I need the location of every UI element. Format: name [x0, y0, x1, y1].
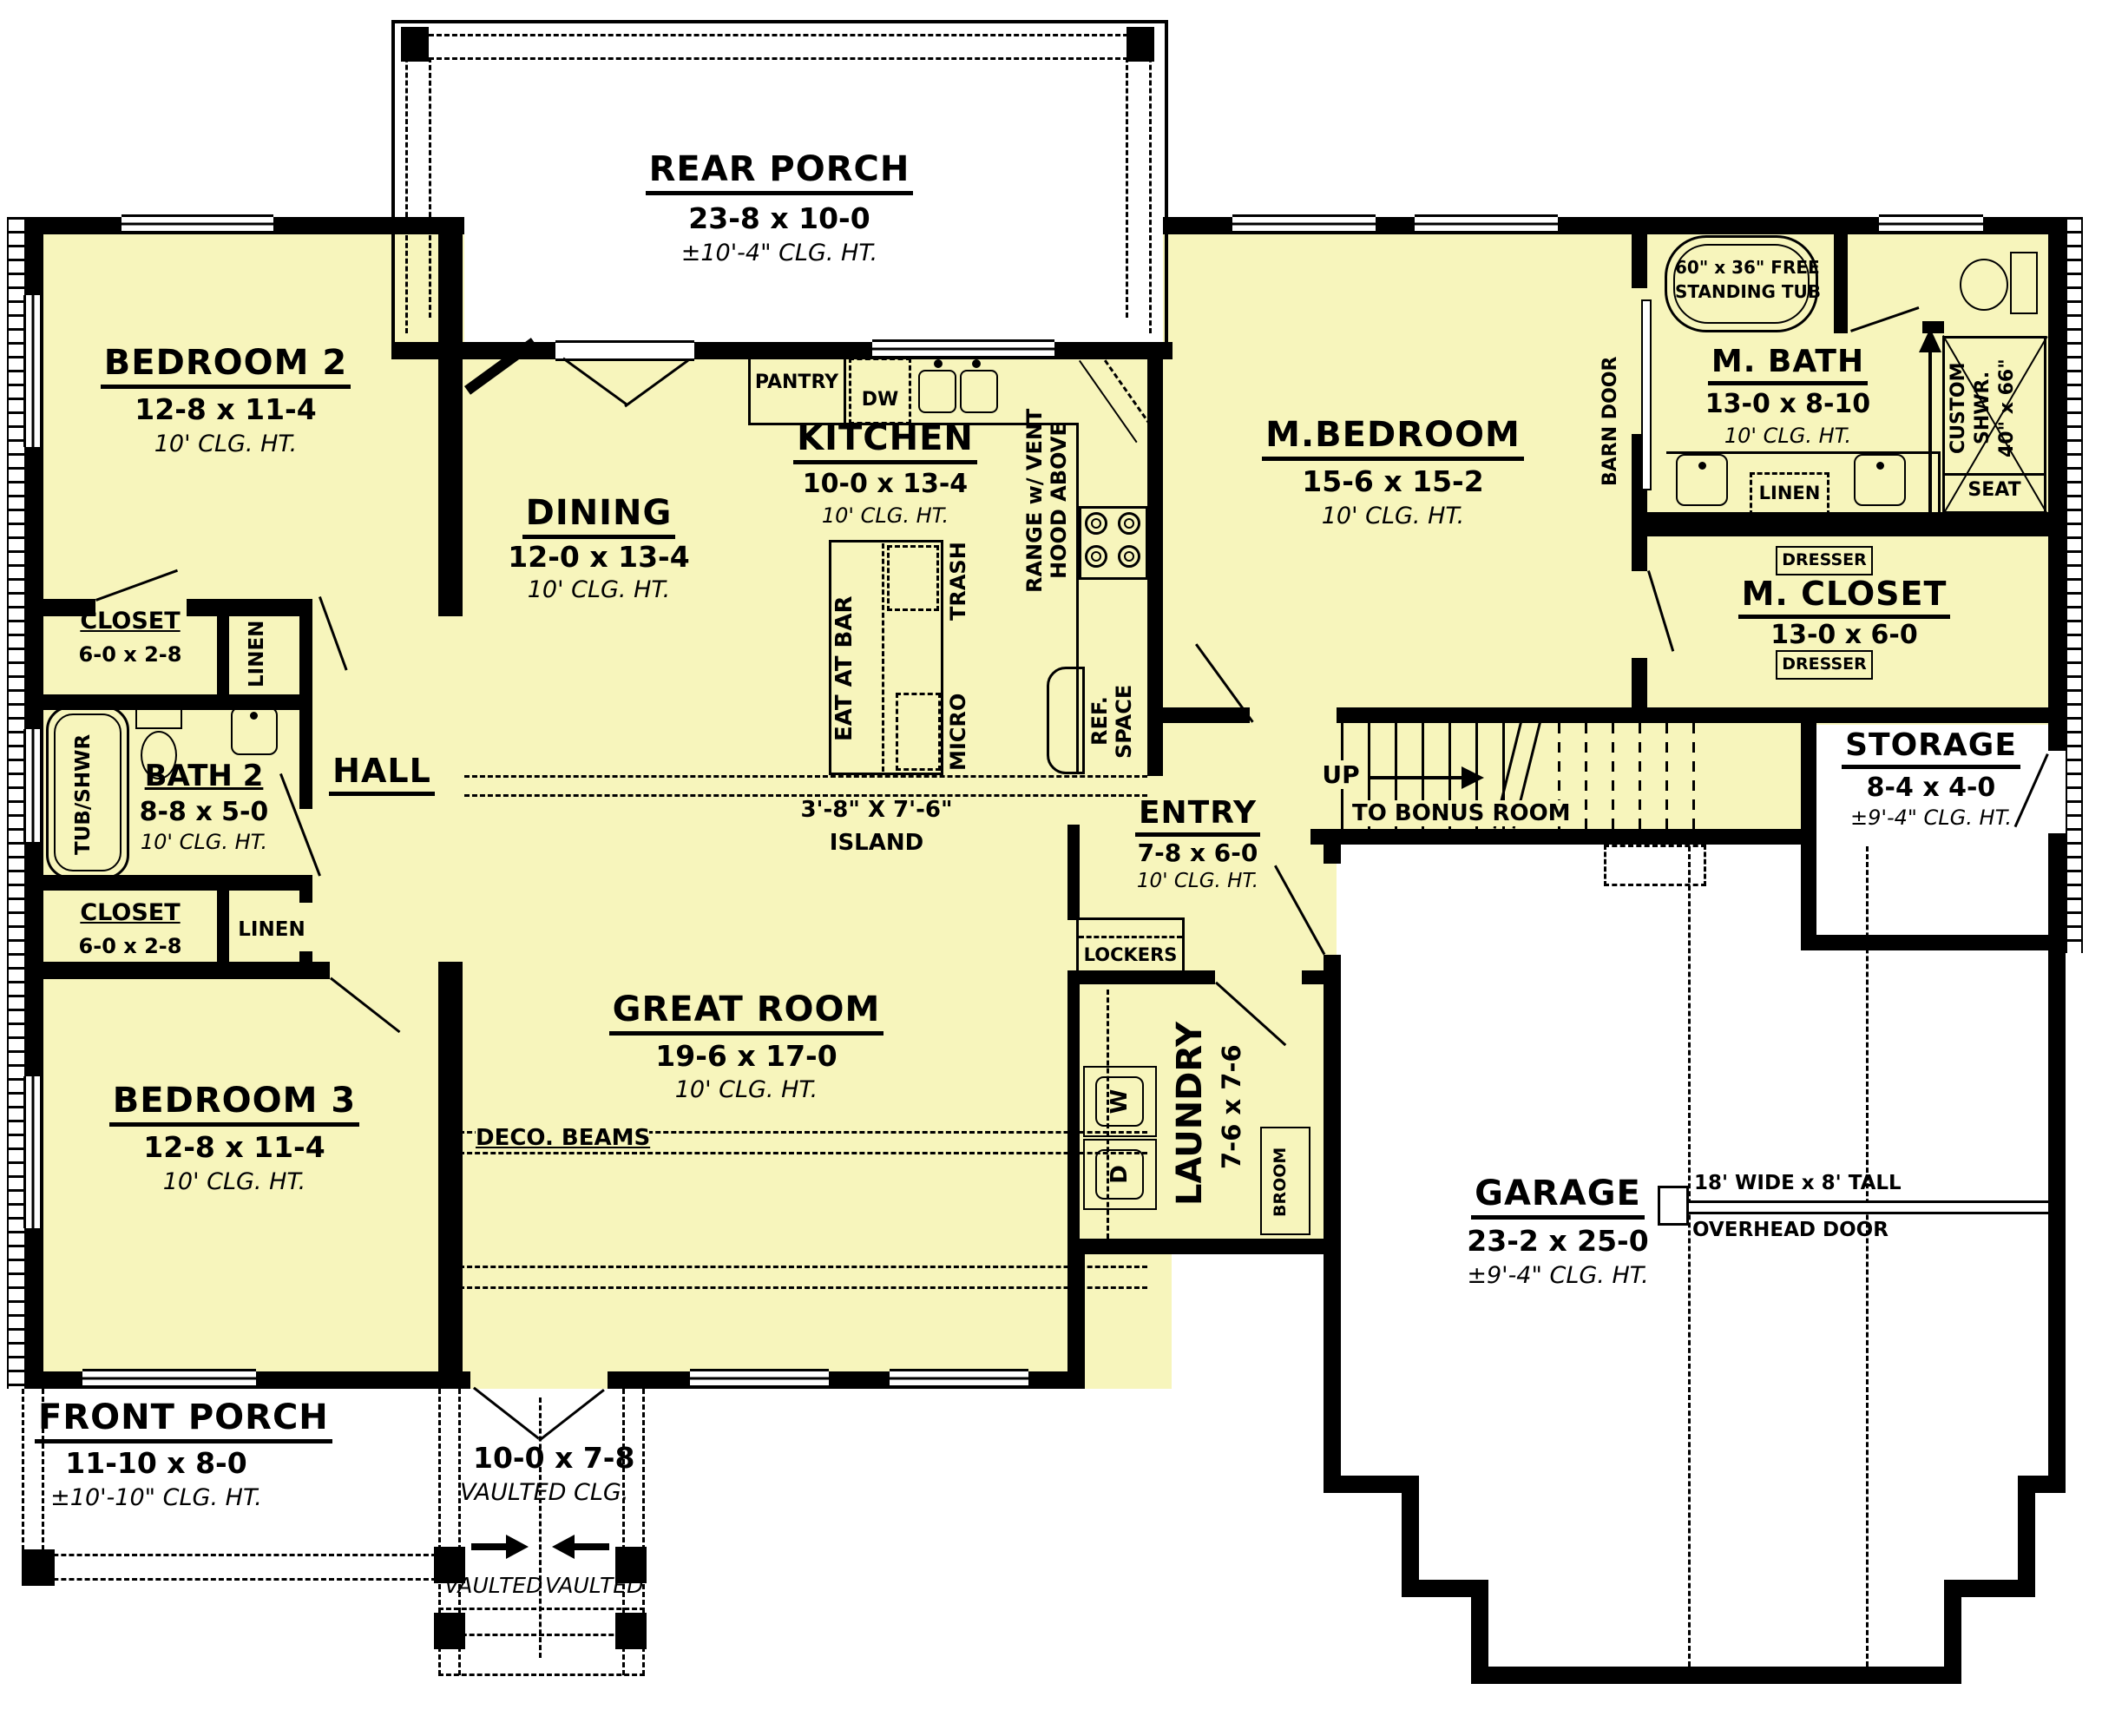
wall	[1632, 536, 1647, 571]
wall	[26, 875, 312, 891]
entry-title: ENTRY	[1107, 795, 1289, 831]
tub-label: 60" x 36" FREE	[1675, 257, 1808, 278]
wall	[1471, 1667, 1961, 1684]
tub-shwr-label: TUB/SHWR	[72, 727, 103, 862]
barn-door-label: BARN DOOR	[1599, 343, 1627, 499]
rear-porch-clg: ±10'-4" CLG. HT.	[645, 240, 914, 266]
overhead-door-panel	[1688, 1200, 2048, 1214]
window	[1415, 214, 1558, 233]
island-divider	[882, 543, 884, 772]
window	[872, 339, 1054, 358]
stair-treads-dash-mask	[1558, 723, 1710, 829]
bedroom2-dims: 12-8 x 11-4	[78, 392, 373, 426]
kitchen-title: KITCHEN	[785, 418, 985, 458]
rear-porch-dims: 23-8 x 10-0	[645, 201, 914, 235]
lockers-dash	[1079, 936, 1182, 938]
arrow-left-icon	[552, 1535, 575, 1559]
porch-post	[22, 1549, 55, 1586]
garage-door-track	[1688, 846, 1691, 1667]
linen1-label: LINEN	[246, 606, 277, 701]
burner-icon	[1118, 512, 1140, 535]
broom-label: BROOM	[1271, 1135, 1300, 1229]
barn-door-panel	[1641, 299, 1652, 490]
wall	[1067, 825, 1080, 920]
wall	[1163, 707, 1250, 723]
linen2-label: LINEN	[224, 918, 319, 941]
faucet	[1698, 462, 1706, 470]
entry-clg: 10' CLG. HT.	[1107, 870, 1289, 892]
mbath-toilet-bowl	[1960, 259, 2008, 311]
storage-clg: ±9'-4" CLG. HT.	[1810, 806, 2053, 830]
vaulted-porch-edge	[438, 1608, 645, 1610]
bedroom2-title: BEDROOM 2	[78, 343, 373, 383]
faucet	[1876, 462, 1884, 470]
window	[890, 1369, 1028, 1388]
great-room-dims: 19-6 x 17-0	[599, 1039, 894, 1073]
vaulted-ridge-line	[539, 1397, 542, 1658]
island-label: ISLAND	[794, 830, 959, 856]
shower-label: SHWR.	[1972, 352, 1996, 464]
door-leaf	[473, 1387, 540, 1440]
overhead-door-label: 18' WIDE x 8' TALL	[1694, 1172, 1876, 1194]
ref-label: REF.	[1087, 670, 1113, 773]
wall	[1834, 234, 1848, 332]
shower-label: 40" x 66"	[1996, 352, 2020, 464]
wall	[391, 342, 1173, 359]
mbath-clg: 10' CLG. HT.	[1692, 424, 1883, 448]
micro-cabinet	[896, 693, 941, 771]
burner-icon	[1085, 512, 1107, 535]
refrigerator	[1047, 667, 1085, 774]
dryer-label: D	[1107, 1150, 1133, 1199]
wall	[1147, 342, 1163, 776]
bath2-title: BATH 2	[104, 759, 304, 793]
kitchen-clg: 10' CLG. HT.	[785, 503, 985, 528]
closet1-label: CLOSET	[35, 608, 226, 635]
eat-at-bar-label: EAT AT BAR	[831, 573, 863, 764]
rear-porch-title: REAR PORCH	[645, 149, 914, 189]
tub-label: STANDING TUB	[1675, 281, 1808, 302]
dining-clg: 10' CLG. HT.	[516, 576, 681, 603]
wall	[1324, 955, 1341, 1493]
mbedroom-clg: 10' CLG. HT.	[1250, 503, 1536, 529]
ref-label: SPACE	[1112, 670, 1138, 773]
mbath-linen-label: LINEN	[1751, 483, 1828, 503]
range-label: HOOD ABOVE	[1047, 375, 1073, 627]
bath2-dims: 8-8 x 5-0	[104, 797, 304, 827]
vaulted-porch-edge	[438, 1674, 645, 1676]
to-bonus-room-label: TO BONUS ROOM	[1352, 800, 1564, 826]
porch-edge	[22, 1554, 437, 1556]
garage-dims: 23-2 x 25-0	[1432, 1224, 1684, 1258]
wall	[438, 1371, 470, 1389]
wall	[1067, 1239, 1085, 1389]
porch-post	[434, 1613, 465, 1649]
storage-title: STORAGE	[1810, 727, 2053, 763]
door-leaf	[538, 1389, 605, 1442]
rear-door-opening	[555, 340, 694, 361]
kitchen-sink-basin	[960, 370, 998, 413]
dresser-label: DRESSER	[1776, 654, 1873, 674]
pantry-label: PANTRY	[750, 372, 844, 393]
stairs-up-label: UP	[1317, 760, 1364, 789]
shower-label: CUSTOM	[1948, 352, 1972, 464]
deco-beam	[451, 1266, 1147, 1268]
wall	[1310, 829, 1814, 845]
wall	[2018, 1476, 2035, 1597]
kitchen-dims: 10-0 x 13-4	[785, 469, 985, 499]
mcloset-title: M. CLOSET	[1723, 575, 1966, 613]
wall	[1632, 707, 2066, 723]
wall	[438, 962, 463, 1389]
siding-right	[2066, 217, 2083, 953]
deco-beams-label: DECO. BEAMS	[476, 1125, 649, 1151]
stair-landing-dashed	[1604, 845, 1706, 886]
wall	[1337, 707, 1649, 723]
vaulted-label: VAULTED	[545, 1573, 636, 1598]
great-room-title: GREAT ROOM	[599, 990, 894, 1029]
vaulted-arrow-shaft	[471, 1543, 506, 1550]
porch-edge	[22, 1389, 24, 1558]
great-room-clg: 10' CLG. HT.	[599, 1076, 894, 1103]
overhead-door-label: OVERHEAD DOOR	[1692, 1219, 1878, 1241]
lockers-label: LOCKERS	[1079, 944, 1182, 965]
dresser-label: DRESSER	[1776, 550, 1873, 569]
garage-clg: ±9'-4" CLG. HT.	[1432, 1262, 1684, 1289]
faucet	[250, 712, 258, 720]
burner-icon	[1118, 545, 1140, 568]
wall	[1067, 970, 1215, 984]
mbath-dims: 13-0 x 8-10	[1692, 389, 1883, 419]
washer-label: W	[1107, 1077, 1133, 1126]
dining-title: DINING	[516, 493, 681, 533]
porch-edge	[22, 1578, 437, 1581]
micro-label: MICRO	[946, 691, 974, 773]
hall-title: HALL	[317, 752, 447, 790]
floor-corridor	[1163, 723, 1337, 776]
porch-post	[401, 27, 429, 62]
deco-beam	[451, 1286, 1147, 1289]
wall	[1922, 321, 1944, 333]
mbath-title: M. BATH	[1692, 344, 1883, 379]
burner-icon	[1085, 545, 1107, 568]
bedroom3-clg: 10' CLG. HT.	[91, 1168, 378, 1195]
front-porch-dims: 11-10 x 8-0	[35, 1446, 278, 1480]
window	[23, 1076, 43, 1228]
garage-door-track	[1866, 846, 1869, 1667]
wall	[1632, 512, 2048, 536]
laundry-dims: 7-6 x 7-6	[1217, 1029, 1250, 1185]
vanity-counter	[1938, 451, 1941, 514]
bedroom3-title: BEDROOM 3	[91, 1081, 378, 1121]
window	[1879, 214, 1983, 233]
bedroom3-dims: 12-8 x 11-4	[91, 1130, 378, 1164]
front-porch-clg: ±10'-10" CLG. HT.	[35, 1484, 278, 1511]
ceiling-break	[464, 775, 1147, 778]
wall	[1632, 234, 1647, 288]
wall	[1801, 935, 2066, 950]
window	[23, 729, 43, 842]
closet2-dims: 6-0 x 2-8	[35, 934, 226, 958]
entry-dims: 7-8 x 6-0	[1107, 838, 1289, 867]
garage-title: GARAGE	[1432, 1174, 1684, 1213]
wall	[1834, 321, 1848, 333]
dishwasher-label: DW	[851, 389, 910, 411]
wall	[1067, 974, 1080, 1239]
vaulted-label: VAULTED	[444, 1573, 535, 1598]
shower-seat-line	[1942, 473, 2046, 476]
trash-label: TRASH	[946, 540, 974, 622]
range-label: RANGE w/ VENT	[1022, 375, 1048, 627]
shower-door-arrow	[1928, 349, 1932, 514]
mbedroom-title: M.BEDROOM	[1250, 415, 1536, 455]
wall	[2048, 937, 2066, 1493]
porch-post	[615, 1613, 647, 1649]
seat-label: SEAT	[1951, 479, 2038, 501]
window	[1232, 214, 1376, 233]
window	[82, 1369, 256, 1388]
closet2-label: CLOSET	[35, 899, 226, 926]
wall	[438, 217, 463, 616]
stairs-up-arrow	[1370, 776, 1462, 779]
deco-beam	[451, 1152, 1147, 1154]
closet1-dims: 6-0 x 2-8	[35, 642, 226, 667]
mbedroom-dims: 15-6 x 15-2	[1250, 464, 1536, 498]
window	[122, 214, 273, 233]
trash-cabinet	[887, 545, 939, 611]
bedroom2-clg: 10' CLG. HT.	[78, 431, 373, 457]
storage-dims: 8-4 x 4-0	[1810, 773, 2053, 803]
laundry-title: LAUNDRY	[1170, 996, 1213, 1231]
wall	[1324, 838, 1341, 864]
window	[690, 1369, 829, 1388]
wall	[299, 891, 312, 903]
mcloset-dims: 13-0 x 6-0	[1762, 620, 1927, 650]
wall	[26, 962, 330, 979]
pantry-wall	[844, 359, 846, 424]
faucet	[972, 359, 981, 368]
laundry-counter-dash	[1107, 990, 1109, 1239]
wall	[1632, 658, 1647, 707]
dining-dims: 12-0 x 13-4	[508, 540, 690, 574]
vaulted-entry-dims: 10-0 x 7-8	[473, 1441, 608, 1475]
wall	[1402, 1476, 1419, 1597]
vaulted-entry-clg: VAULTED CLG.	[460, 1479, 621, 1506]
wall	[2048, 217, 2066, 751]
vaulted-porch-edge	[438, 1634, 645, 1636]
vaulted-arrow-shaft	[575, 1543, 609, 1550]
island-dims: 3'-8" X 7'-6"	[794, 797, 959, 823]
wall	[1067, 1239, 1337, 1254]
arrow-right-icon	[1462, 766, 1484, 789]
floor-plan: REAR PORCH 23-8 x 10-0 ±10'-4" CLG. HT. …	[0, 0, 2102, 1736]
porch-post	[1127, 27, 1154, 62]
kitchen-sink-basin	[918, 370, 956, 413]
faucet	[934, 359, 943, 368]
arrow-right-icon	[506, 1535, 529, 1559]
window	[23, 295, 43, 447]
mbath-toilet-tank	[2010, 252, 2038, 314]
front-porch-title: FRONT PORCH	[35, 1397, 278, 1437]
bath2-clg: 10' CLG. HT.	[104, 830, 304, 854]
